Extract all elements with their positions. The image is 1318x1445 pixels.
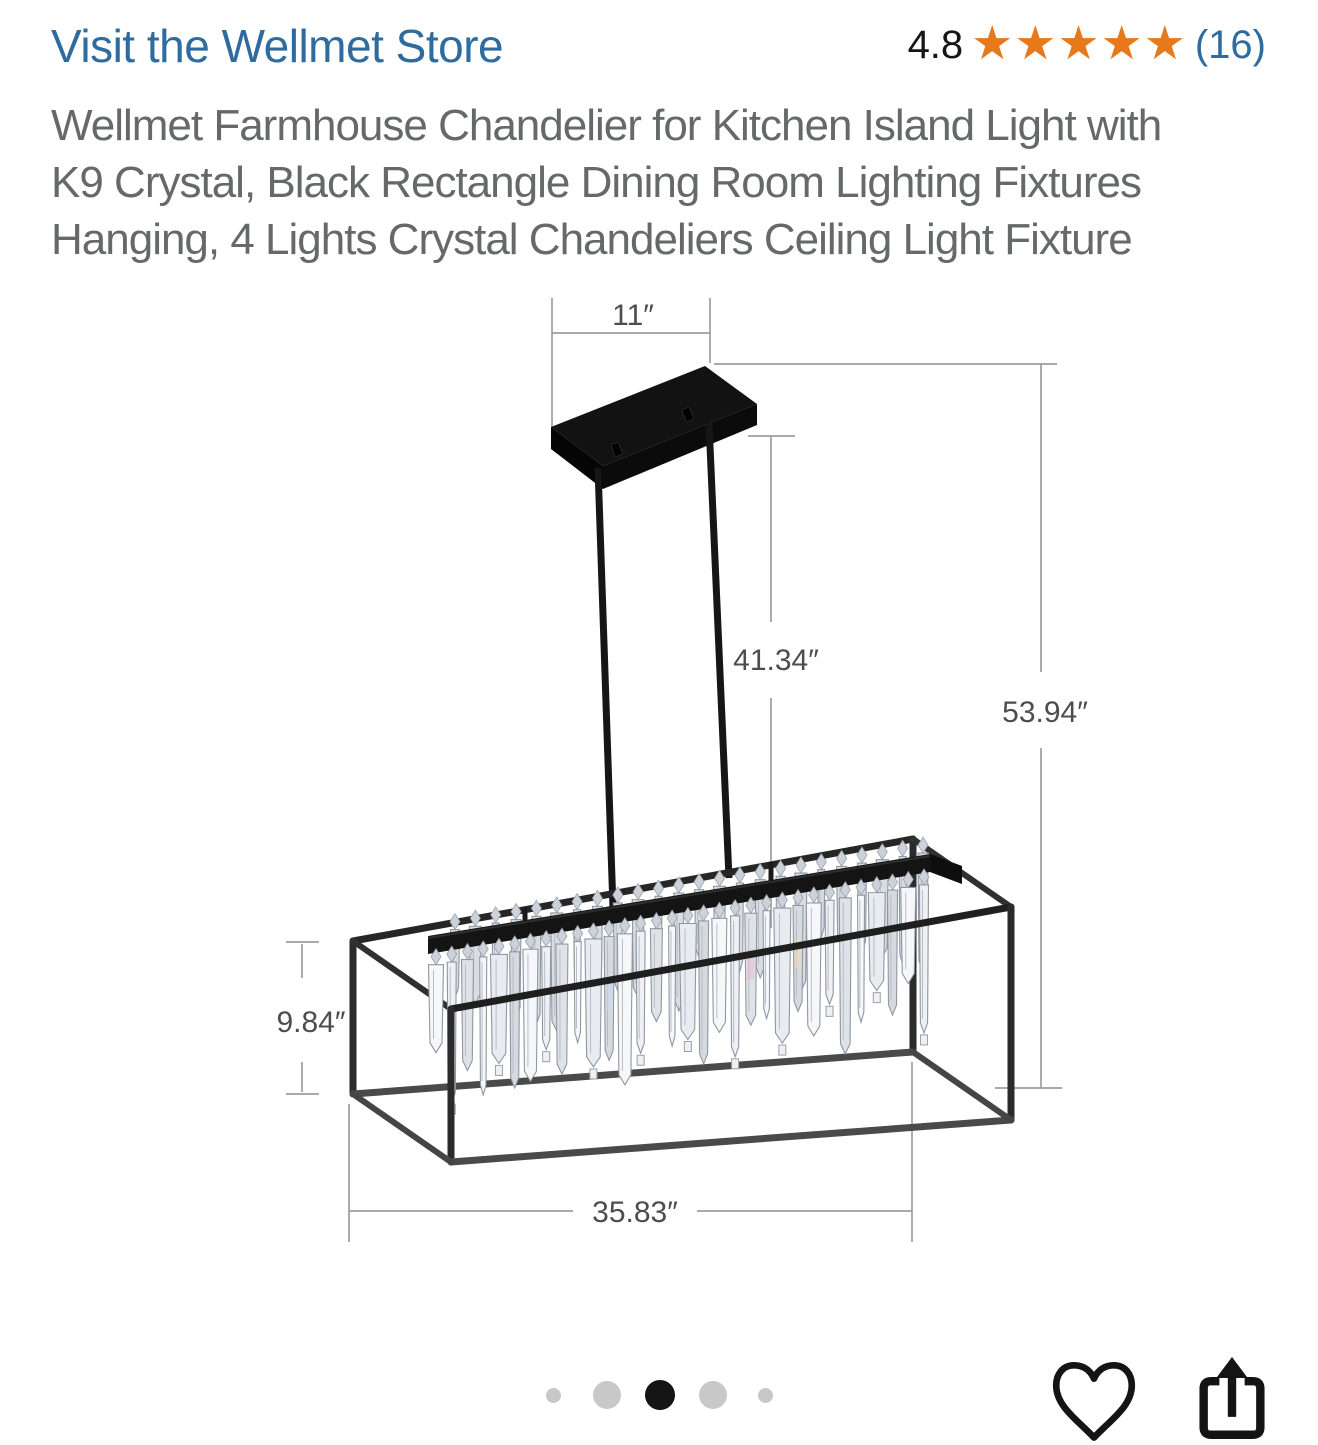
- carousel-dot[interactable]: [546, 1388, 561, 1403]
- dimension-label-canopy-width: 11″: [612, 299, 654, 332]
- dimension-label-rod-drop: 41.34″: [733, 644, 819, 677]
- carousel-dot[interactable]: [758, 1388, 773, 1403]
- product-header: Visit the Wellmet Store 4.8 ★★★★★ (16) W…: [0, 0, 1318, 268]
- stars-icon[interactable]: ★★★★★: [971, 20, 1187, 67]
- share-button[interactable]: [1196, 1356, 1268, 1440]
- carousel-dot[interactable]: [593, 1381, 621, 1409]
- product-image[interactable]: 11″ 41.34″ 53.94″ 9.84″ 35.83″: [0, 280, 1318, 1340]
- hanging-rod-left: [598, 468, 613, 908]
- product-title-line: K9 Crystal, Black Rectangle Dining Room …: [51, 154, 1267, 211]
- review-count-link[interactable]: (16): [1195, 23, 1266, 68]
- rating-summary: 4.8 ★★★★★ (16): [908, 22, 1266, 69]
- rating-value: 4.8: [908, 23, 964, 68]
- dimension-label-overall-height: 53.94″: [1002, 696, 1088, 729]
- store-link[interactable]: Visit the Wellmet Store: [51, 20, 503, 73]
- carousel-dot[interactable]: [699, 1381, 727, 1409]
- hanging-rod-right: [709, 423, 729, 878]
- product-title-line: Wellmet Farmhouse Chandelier for Kitchen…: [51, 97, 1267, 154]
- ceiling-canopy-plate: [551, 366, 757, 489]
- image-carousel-bar: [0, 1340, 1318, 1440]
- carousel-dots: [527, 1378, 792, 1412]
- product-title-line: Hanging, 4 Lights Crystal Chandeliers Ce…: [51, 211, 1267, 268]
- wishlist-button[interactable]: [1052, 1362, 1136, 1442]
- dimension-label-frame-length: 35.83″: [592, 1196, 678, 1229]
- store-rating-row: Visit the Wellmet Store 4.8 ★★★★★ (16): [0, 0, 1318, 73]
- heart-icon: [1052, 1362, 1136, 1442]
- share-icon: [1196, 1356, 1268, 1440]
- carousel-dot-active[interactable]: [645, 1380, 675, 1410]
- product-title: Wellmet Farmhouse Chandelier for Kitchen…: [51, 97, 1267, 268]
- chandelier-drawing: [353, 366, 1011, 1162]
- dimension-label-frame-height: 9.84″: [276, 1006, 345, 1039]
